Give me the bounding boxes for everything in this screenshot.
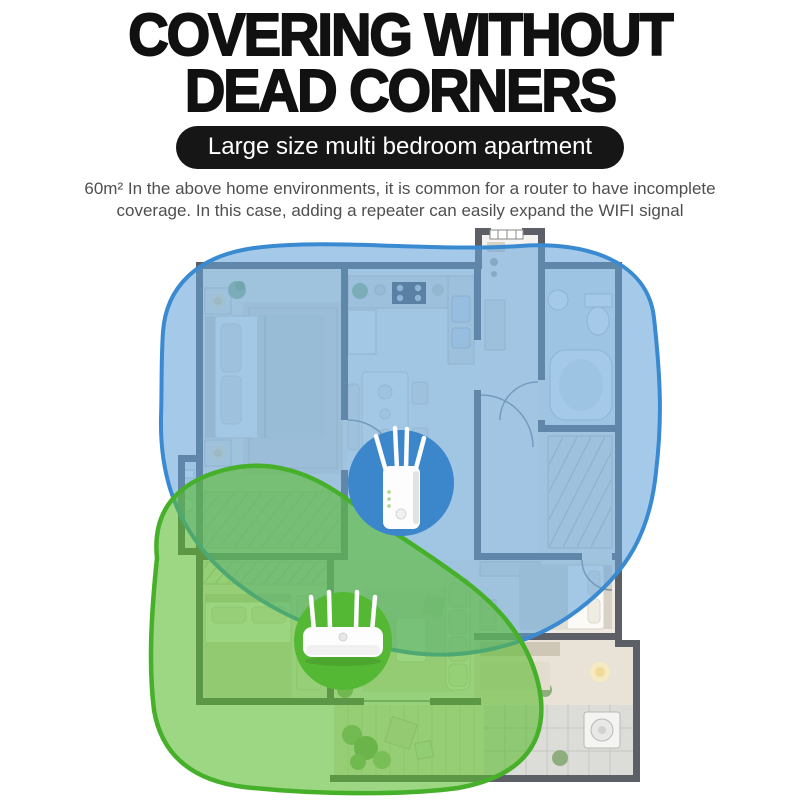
description: 60m² In the above home environments, it … bbox=[0, 178, 800, 222]
wifi-router-device bbox=[294, 592, 392, 690]
subtitle-badge: Large size multi bedroom apartment bbox=[176, 126, 624, 169]
header: COVERING WITHOUT DEAD CORNERS Large size… bbox=[0, 6, 800, 222]
title-line-2: DEAD CORNERS bbox=[0, 62, 800, 118]
page-title: COVERING WITHOUT DEAD CORNERS bbox=[0, 6, 800, 119]
description-line-2: coverage. In this case, adding a repeate… bbox=[0, 200, 800, 222]
description-line-1: 60m² In the above home environments, it … bbox=[0, 178, 800, 200]
title-line-1: COVERING WITHOUT bbox=[0, 6, 800, 62]
entrance-door bbox=[490, 230, 523, 239]
marketing-banner: COVERING WITHOUT DEAD CORNERS Large size… bbox=[0, 0, 800, 800]
